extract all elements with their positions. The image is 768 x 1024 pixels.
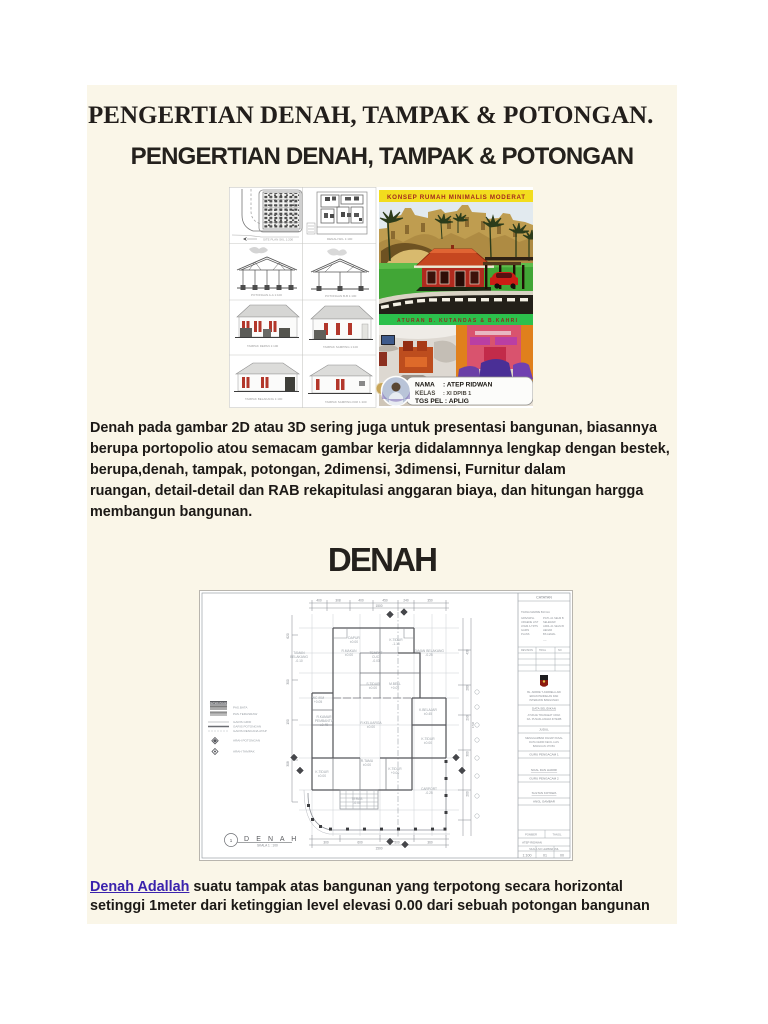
- svg-text:ANGL GAMBAR: ANGL GAMBAR: [533, 800, 556, 804]
- svg-text:-0.25: -0.25: [425, 653, 433, 657]
- svg-text:600: 600: [357, 841, 363, 845]
- svg-text:BANGUAN 176 BU: BANGUAN 176 BU: [533, 744, 555, 748]
- svg-text:D E N A H: D E N A H: [244, 836, 299, 843]
- svg-text:400: 400: [358, 599, 364, 603]
- svg-text:PGTL A1 SELM B: PGTL A1 SELM B: [543, 616, 564, 620]
- svg-text:POTONGAN A-A 1:100: POTONGAN A-A 1:100: [251, 293, 282, 297]
- svg-text:240: 240: [403, 599, 409, 603]
- svg-text:00: 00: [560, 854, 564, 858]
- svg-text:AYEM A.TRTS: AYEM A.TRTS: [521, 624, 538, 628]
- svg-text:TGS PEL : APLIG: TGS PEL : APLIG: [415, 398, 469, 405]
- svg-text:+0.05: +0.05: [314, 700, 323, 704]
- svg-text:ATUKAE TRANGEAT URAK: ATUKAE TRANGEAT URAK: [528, 713, 561, 717]
- svg-text:GURU PENGACAM 2: GURU PENGACAM 2: [529, 777, 559, 781]
- svg-text:POTONGAN B-B 1:100: POTONGAN B-B 1:100: [325, 294, 357, 298]
- svg-text:SELERAW: SELERAW: [543, 620, 556, 624]
- svg-text:BL. ADRRE T-ASRRELA-AW: BL. ADRRE T-ASRRELA-AW: [527, 690, 561, 694]
- svg-text:450: 450: [382, 599, 388, 603]
- svg-text:±0.00: ±0.00: [350, 640, 358, 644]
- svg-text:GARIS: GARIS: [521, 628, 529, 632]
- svg-text:±0.00: ±0.00: [367, 725, 375, 729]
- svg-text:PLANS: PLANS: [521, 632, 530, 636]
- svg-text:ATEP RIDWAN: ATEP RIDWAN: [522, 841, 542, 845]
- svg-text:1500: 1500: [375, 847, 382, 851]
- svg-text:REVISION: REVISION: [521, 649, 533, 652]
- svg-text:620: 620: [286, 633, 290, 639]
- svg-text:360: 360: [427, 841, 433, 845]
- svg-text:CATATAN: CATATAN: [536, 596, 552, 600]
- svg-text:±0.00: ±0.00: [318, 774, 326, 778]
- svg-text:430: 430: [466, 649, 470, 655]
- svg-text:GARIS POTONGAN: GARIS POTONGAN: [233, 725, 261, 729]
- svg-text:PAS.TERASRAW: PAS.TERASRAW: [233, 712, 257, 716]
- svg-text:308: 308: [335, 599, 341, 603]
- svg-text:±0.00: ±0.00: [363, 763, 371, 767]
- svg-text:-1.15: -1.15: [392, 642, 400, 646]
- svg-text:-0.25: -0.25: [425, 791, 433, 795]
- svg-text:TRIAL: TRIAL: [539, 649, 547, 652]
- svg-text:TAMPAK SAMPING 1:100: TAMPAK SAMPING 1:100: [323, 345, 358, 349]
- svg-text:300: 300: [286, 679, 290, 685]
- svg-text:KETERANGAN: KETERANGAN: [210, 701, 228, 705]
- svg-text:TAMPAK DEPAN 1:100: TAMPAK DEPAN 1:100: [247, 344, 279, 348]
- svg-text:1:100: 1:100: [523, 854, 532, 858]
- svg-text:GARIS RENCANA ATAP: GARIS RENCANA ATAP: [233, 729, 267, 733]
- svg-text:JUDUL: JUDUL: [539, 728, 549, 732]
- svg-text:1732: 1732: [471, 721, 475, 728]
- svg-text:TANGL: TANGL: [552, 833, 562, 837]
- svg-text:±0.00: ±0.00: [424, 741, 432, 745]
- svg-text:-0.10: -0.10: [295, 659, 303, 663]
- svg-text:PAS.BATA: PAS.BATA: [233, 706, 248, 710]
- svg-text:INTERAKSI BANGUNAN: INTERAKSI BANGUNAN: [529, 698, 558, 702]
- svg-text:: ATEP RIDWAN: : ATEP RIDWAN: [443, 382, 493, 389]
- svg-text:KONSEP RUMAH MINIMALIS MODERAT: KONSEP RUMAH MINIMALIS MODERAT: [387, 194, 525, 201]
- svg-text:DATA SELIDIKAN: DATA SELIDIKAN: [532, 707, 556, 711]
- svg-text:308: 308: [286, 761, 290, 767]
- svg-text:ADDL A1 SELM B: ADDL A1 SELM B: [543, 624, 564, 628]
- svg-text:-0.05: -0.05: [353, 801, 361, 805]
- svg-text:300: 300: [323, 841, 329, 845]
- svg-text:400: 400: [316, 599, 322, 603]
- svg-text:-0.03: -0.03: [372, 659, 380, 663]
- svg-text:ARAH POTONGAN: ARAH POTONGAN: [233, 739, 260, 743]
- svg-text:300: 300: [466, 751, 470, 757]
- svg-text:DA. PUSAKLANGRA INTERB: DA. PUSAKLANGRA INTERB: [527, 717, 562, 721]
- svg-text:: XI DPIB 1: : XI DPIB 1: [443, 391, 471, 397]
- svg-text:SKALA 1 : 100: SKALA 1 : 100: [257, 844, 278, 848]
- svg-text:500: 500: [394, 841, 400, 845]
- svg-text:DATA CERDI KECIL LIAS: DATA CERDI KECIL LIAS: [529, 740, 559, 744]
- svg-text:NOAL DAN HADIRI: NOAL DAN HADIRI: [531, 768, 557, 772]
- svg-text:200: 200: [466, 791, 470, 797]
- svg-text:150: 150: [286, 719, 290, 725]
- svg-text:NAMA: NAMA: [415, 382, 435, 389]
- svg-text:BS LEMAL: BS LEMAL: [543, 632, 556, 636]
- svg-text:GURU PENGACAM 1: GURU PENGACAM 1: [529, 753, 559, 757]
- svg-text:----: ----: [543, 639, 547, 642]
- svg-text:SKALA NO LEMBAR JML: SKALA NO LEMBAR JML: [529, 847, 559, 851]
- svg-text:+0.00: +0.00: [391, 771, 400, 775]
- svg-text:NO: NO: [558, 649, 562, 652]
- svg-text:±0.45: ±0.45: [424, 712, 432, 716]
- svg-text:1500: 1500: [375, 604, 382, 608]
- svg-text:TAMPAK SAMPING KIRI 1:100: TAMPAK SAMPING KIRI 1:100: [325, 400, 367, 404]
- svg-text:HENAR: HENAR: [543, 628, 552, 632]
- svg-text:POMBER: POMBER: [525, 833, 537, 837]
- svg-text:SITE PLAN SKL 1:200: SITE PLAN SKL 1:200: [263, 238, 293, 242]
- svg-text:280: 280: [466, 685, 470, 691]
- svg-text:GRS/GRSL: GRS/GRSL: [521, 616, 535, 620]
- svg-text:EDIAN PANDELAN DAN: EDIAN PANDELAN DAN: [530, 694, 559, 698]
- svg-text:±0.45: ±0.45: [320, 723, 328, 727]
- svg-text:+0.05: +0.05: [391, 686, 400, 690]
- svg-text:DENAH SKL 1:100: DENAH SKL 1:100: [327, 237, 353, 241]
- svg-text:MENGGAMBAR RANAP PASAL: MENGGAMBAR RANAP PASAL: [525, 736, 563, 740]
- svg-text:KELAS: KELAS: [415, 391, 435, 397]
- svg-text:350: 350: [427, 599, 433, 603]
- svg-text:TRANA MAWRE B10 HA: TRANA MAWRE B10 HA: [521, 610, 550, 614]
- svg-text:ARAH TAMPAK: ARAH TAMPAK: [233, 750, 256, 754]
- svg-text:±0.00: ±0.00: [345, 653, 353, 657]
- svg-text:URGENE LIST: URGENE LIST: [521, 620, 539, 624]
- svg-text:GARIS GRID: GARIS GRID: [233, 720, 252, 724]
- svg-text:TAMPAK BELAKANG 1:100: TAMPAK BELAKANG 1:100: [245, 397, 283, 401]
- svg-text:±0.00: ±0.00: [369, 686, 377, 690]
- svg-text:SULTAN KOTAWA: SULTAN KOTAWA: [532, 791, 557, 795]
- svg-text:01: 01: [543, 854, 547, 858]
- svg-text:290: 290: [466, 715, 470, 721]
